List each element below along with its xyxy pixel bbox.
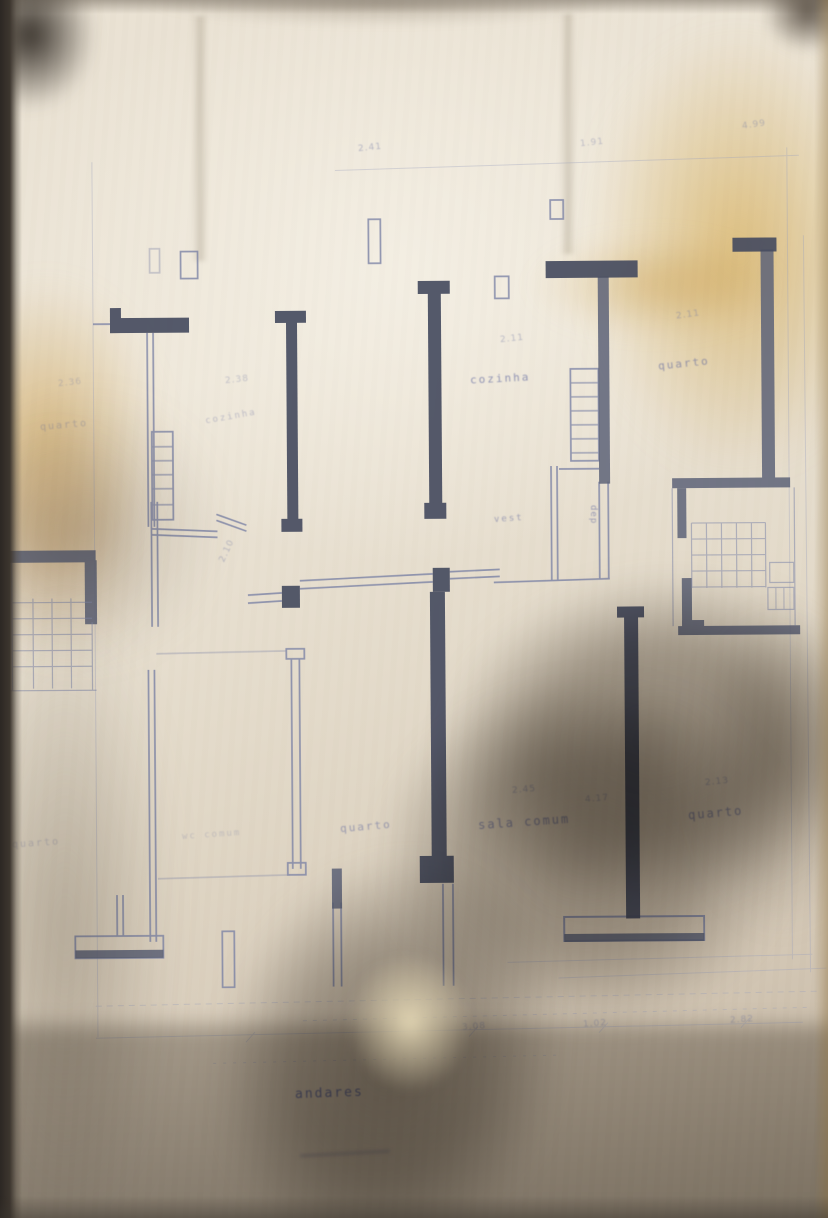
page-top-edge [0, 0, 828, 14]
bottom-edge-shade [0, 1196, 828, 1218]
floor-plan-photo: cozinhaquartocozinhaquartovestdepquartos… [0, 0, 828, 1218]
dark-left-edge [0, 0, 22, 1218]
light-gap-spot [348, 952, 472, 1092]
right-edge-tint [814, 0, 828, 1218]
room-label-4: vest [494, 513, 524, 525]
room-label-5: dep [588, 505, 598, 524]
